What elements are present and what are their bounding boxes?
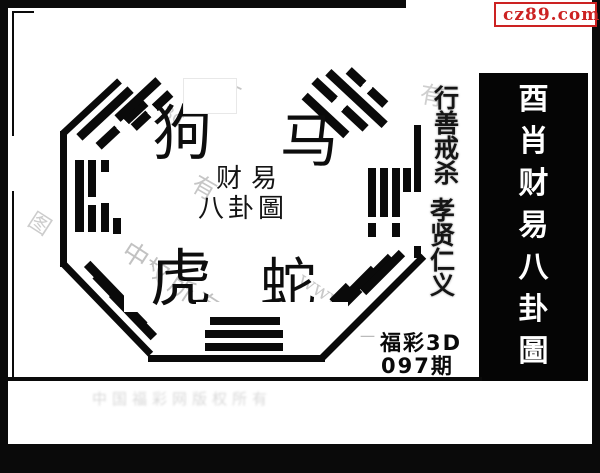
site-badge-label: cz89.com bbox=[503, 5, 600, 25]
trigram-right-bar bbox=[368, 223, 376, 237]
site-badge: cz89.com bbox=[494, 2, 597, 27]
octagon-edge-left bbox=[60, 131, 67, 267]
trigram-left-bar bbox=[88, 205, 96, 232]
watermark-text: 图 bbox=[24, 210, 54, 240]
zodiac-horse: 马 bbox=[280, 112, 338, 170]
vertical-title-panel: 酉 肖 财 易 八 卦 圖 bbox=[479, 73, 588, 381]
border-left bbox=[0, 0, 8, 473]
panel-char: 八 bbox=[519, 247, 549, 289]
trigram-bottom-bar bbox=[205, 343, 283, 351]
zodiac-tiger: 虎 bbox=[150, 248, 212, 310]
trigram-bottom-bar bbox=[210, 317, 280, 325]
border-top bbox=[0, 0, 406, 8]
panel-char: 财 bbox=[519, 163, 549, 205]
panel-char: 易 bbox=[519, 205, 549, 247]
white-patch bbox=[11, 136, 58, 191]
motto-char: 戒 bbox=[434, 136, 459, 161]
panel-char: 肖 bbox=[519, 121, 549, 163]
white-patch bbox=[183, 78, 237, 114]
white-patch bbox=[124, 265, 152, 312]
motto-column-2: 孝 贤 仁 义 bbox=[430, 198, 455, 298]
lottery-bagua-image: cz89.com 酉 肖 财 易 八 卦 圖 有 3g 有 中 权所有 www.… bbox=[0, 0, 600, 473]
trigram-right-bar bbox=[368, 168, 376, 217]
watermark-text: 中国福彩网版权所有 bbox=[92, 392, 272, 407]
panel-char: 酉 bbox=[519, 79, 549, 121]
trigram-left-bar bbox=[75, 160, 84, 232]
trigram-right-bar bbox=[380, 168, 388, 217]
trigram-right-bar bbox=[392, 168, 400, 217]
trigram-left-bar bbox=[88, 160, 96, 197]
trigram-right-bar bbox=[392, 223, 400, 237]
motto-char: 孝 bbox=[430, 198, 455, 223]
issue-period: 097期 bbox=[381, 350, 454, 380]
trigram-right-bar bbox=[403, 168, 411, 192]
trigram-bottom-bar bbox=[205, 330, 283, 338]
seal-title-line2: 八卦圖 bbox=[198, 196, 288, 222]
motto-char: 杀 bbox=[434, 161, 459, 186]
trigram-left-bar bbox=[101, 160, 109, 172]
inner-corner-line-h bbox=[12, 11, 34, 13]
inner-corner-line-v bbox=[12, 11, 14, 377]
border-bottom bbox=[0, 444, 600, 473]
trigram-left-bar bbox=[113, 218, 121, 234]
motto-char: 行 bbox=[434, 86, 459, 111]
motto-char: 义 bbox=[430, 273, 455, 298]
motto-char: 仁 bbox=[430, 248, 455, 273]
seal-title-line1: 财易 bbox=[216, 166, 286, 192]
panel-char: 圖 bbox=[519, 331, 549, 373]
octagon-edge-bottom bbox=[148, 355, 325, 362]
trigram-left-bar bbox=[101, 203, 109, 232]
watermark-text: 一 bbox=[360, 330, 375, 345]
panel-char: 卦 bbox=[519, 289, 549, 331]
motto-column-1: 行 善 戒 杀 bbox=[434, 86, 459, 186]
border-right bbox=[592, 0, 600, 473]
motto-char: 贤 bbox=[430, 223, 455, 248]
motto-char: 善 bbox=[434, 111, 459, 136]
